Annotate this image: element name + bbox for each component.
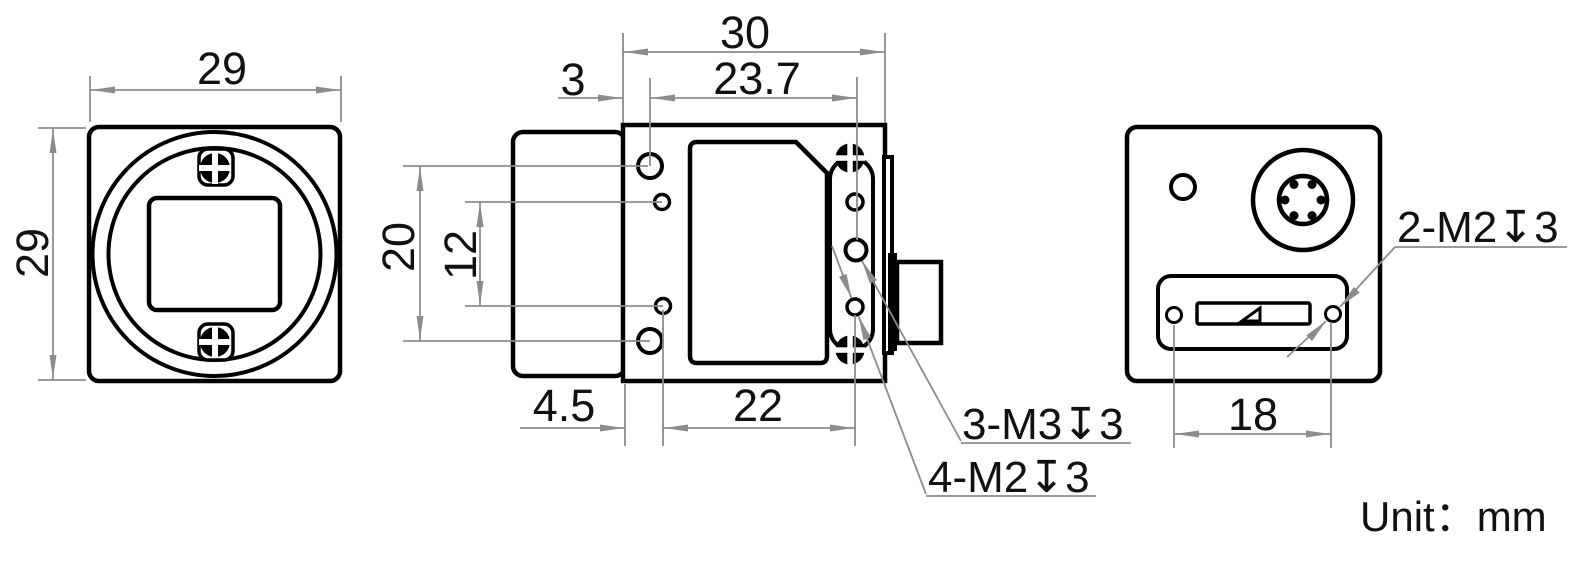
side-recess-panel [690,142,827,363]
dim-text-front-width: 29 [197,43,247,94]
dim-front-width: 29 [90,43,341,122]
arrow-left-icon [91,87,115,94]
arrow-right-icon [830,425,854,432]
usb-connector-side [897,262,941,343]
arrow-up-icon [477,203,484,227]
arrow-left-icon [624,49,648,56]
m2-hole-rear-top [847,194,863,210]
dim-text-hole-pitch-inner: 12 [435,230,486,280]
arrow-right-icon [1306,431,1330,438]
arrow-right-icon [598,95,622,102]
dim-text-front-height: 29 [7,228,58,278]
arrow-left-icon [664,425,688,432]
dim-text-hole-span: 23.7 [713,53,801,104]
unit-note: Unit：mm [1360,493,1547,540]
arrow-right-icon [860,49,884,56]
dim-text-back-screw-span: 18 [1228,389,1278,440]
m2-hole-back-right [1326,307,1341,322]
arrow-right-icon [316,87,340,94]
label-m2-back: 2-M2↧3 [1397,203,1559,252]
arrow-right-icon [832,95,856,102]
arrow-down-icon [50,355,57,379]
side-view [513,125,941,381]
arrow-down-icon [477,281,484,305]
m2-hole-back-left [1167,308,1182,323]
dim-text-lens-offset: 3 [560,54,585,105]
lens-barrel-outline [513,132,625,376]
m3-hole-rear [846,240,867,261]
arrow-down-icon [417,316,424,340]
m2-hole-rear-bottom [847,299,863,315]
label-m2-side: 4-M2↧3 [928,453,1090,502]
dim-text-hole-pitch-outer: 20 [373,222,424,272]
drawing-canvas: 29 29 [0,0,1586,561]
back-view [1127,127,1380,381]
dim-front-height: 29 [7,128,86,380]
label-m3-side: 3-M3↧3 [962,400,1124,449]
arrow-up-icon [417,167,424,191]
arrow-up-icon [50,129,57,153]
arrow-left-icon [651,95,675,102]
camera-dimension-drawing: 29 29 [0,0,1586,561]
dim-text-bottom-span: 22 [733,380,783,431]
arrow-right-icon [600,425,624,432]
dim-text-side-width: 30 [720,7,770,58]
front-view [89,127,340,381]
dim-text-bottom-offset: 4.5 [533,380,596,431]
sensor-window [149,198,280,310]
arrow-left-icon [1175,431,1199,438]
